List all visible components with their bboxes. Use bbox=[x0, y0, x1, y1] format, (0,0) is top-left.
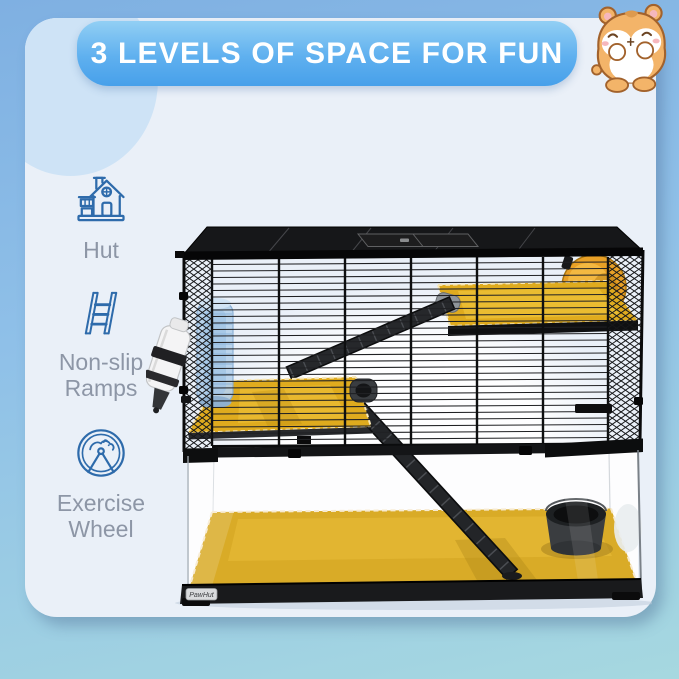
paw bbox=[609, 44, 625, 60]
brand-label-text: PawHut bbox=[189, 592, 215, 599]
feature-hut: Hut bbox=[42, 167, 160, 263]
blue-water-bottle bbox=[197, 298, 233, 408]
feature-label-wheel: Exercise Wheel bbox=[42, 490, 160, 542]
brand-label: PawHut bbox=[186, 589, 217, 601]
background: { "header": { "title": "3 LEVELS OF SPAC… bbox=[0, 0, 679, 679]
cage-roof bbox=[175, 227, 643, 260]
hamster-mascot-illustration bbox=[589, 2, 674, 97]
header-banner: 3 LEVELS OF SPACE FOR FUN bbox=[77, 21, 577, 86]
feature-label-ramps: Non-slip Ramps bbox=[42, 349, 160, 401]
feature-ramps: Non-slip Ramps bbox=[42, 287, 160, 401]
feature-wheel: Exercise Wheel bbox=[42, 424, 160, 542]
hut-icon bbox=[71, 167, 131, 229]
foot bbox=[606, 78, 628, 92]
product-photo-cage: PawHut bbox=[146, 218, 652, 616]
bottle-bracket bbox=[181, 396, 191, 403]
feature-label-hut: Hut bbox=[42, 237, 160, 263]
accessory-blur bbox=[614, 504, 642, 552]
exercise-wheel-icon bbox=[72, 424, 130, 482]
page-title: 3 LEVELS OF SPACE FOR FUN bbox=[91, 37, 564, 71]
ladder-icon bbox=[74, 287, 128, 341]
